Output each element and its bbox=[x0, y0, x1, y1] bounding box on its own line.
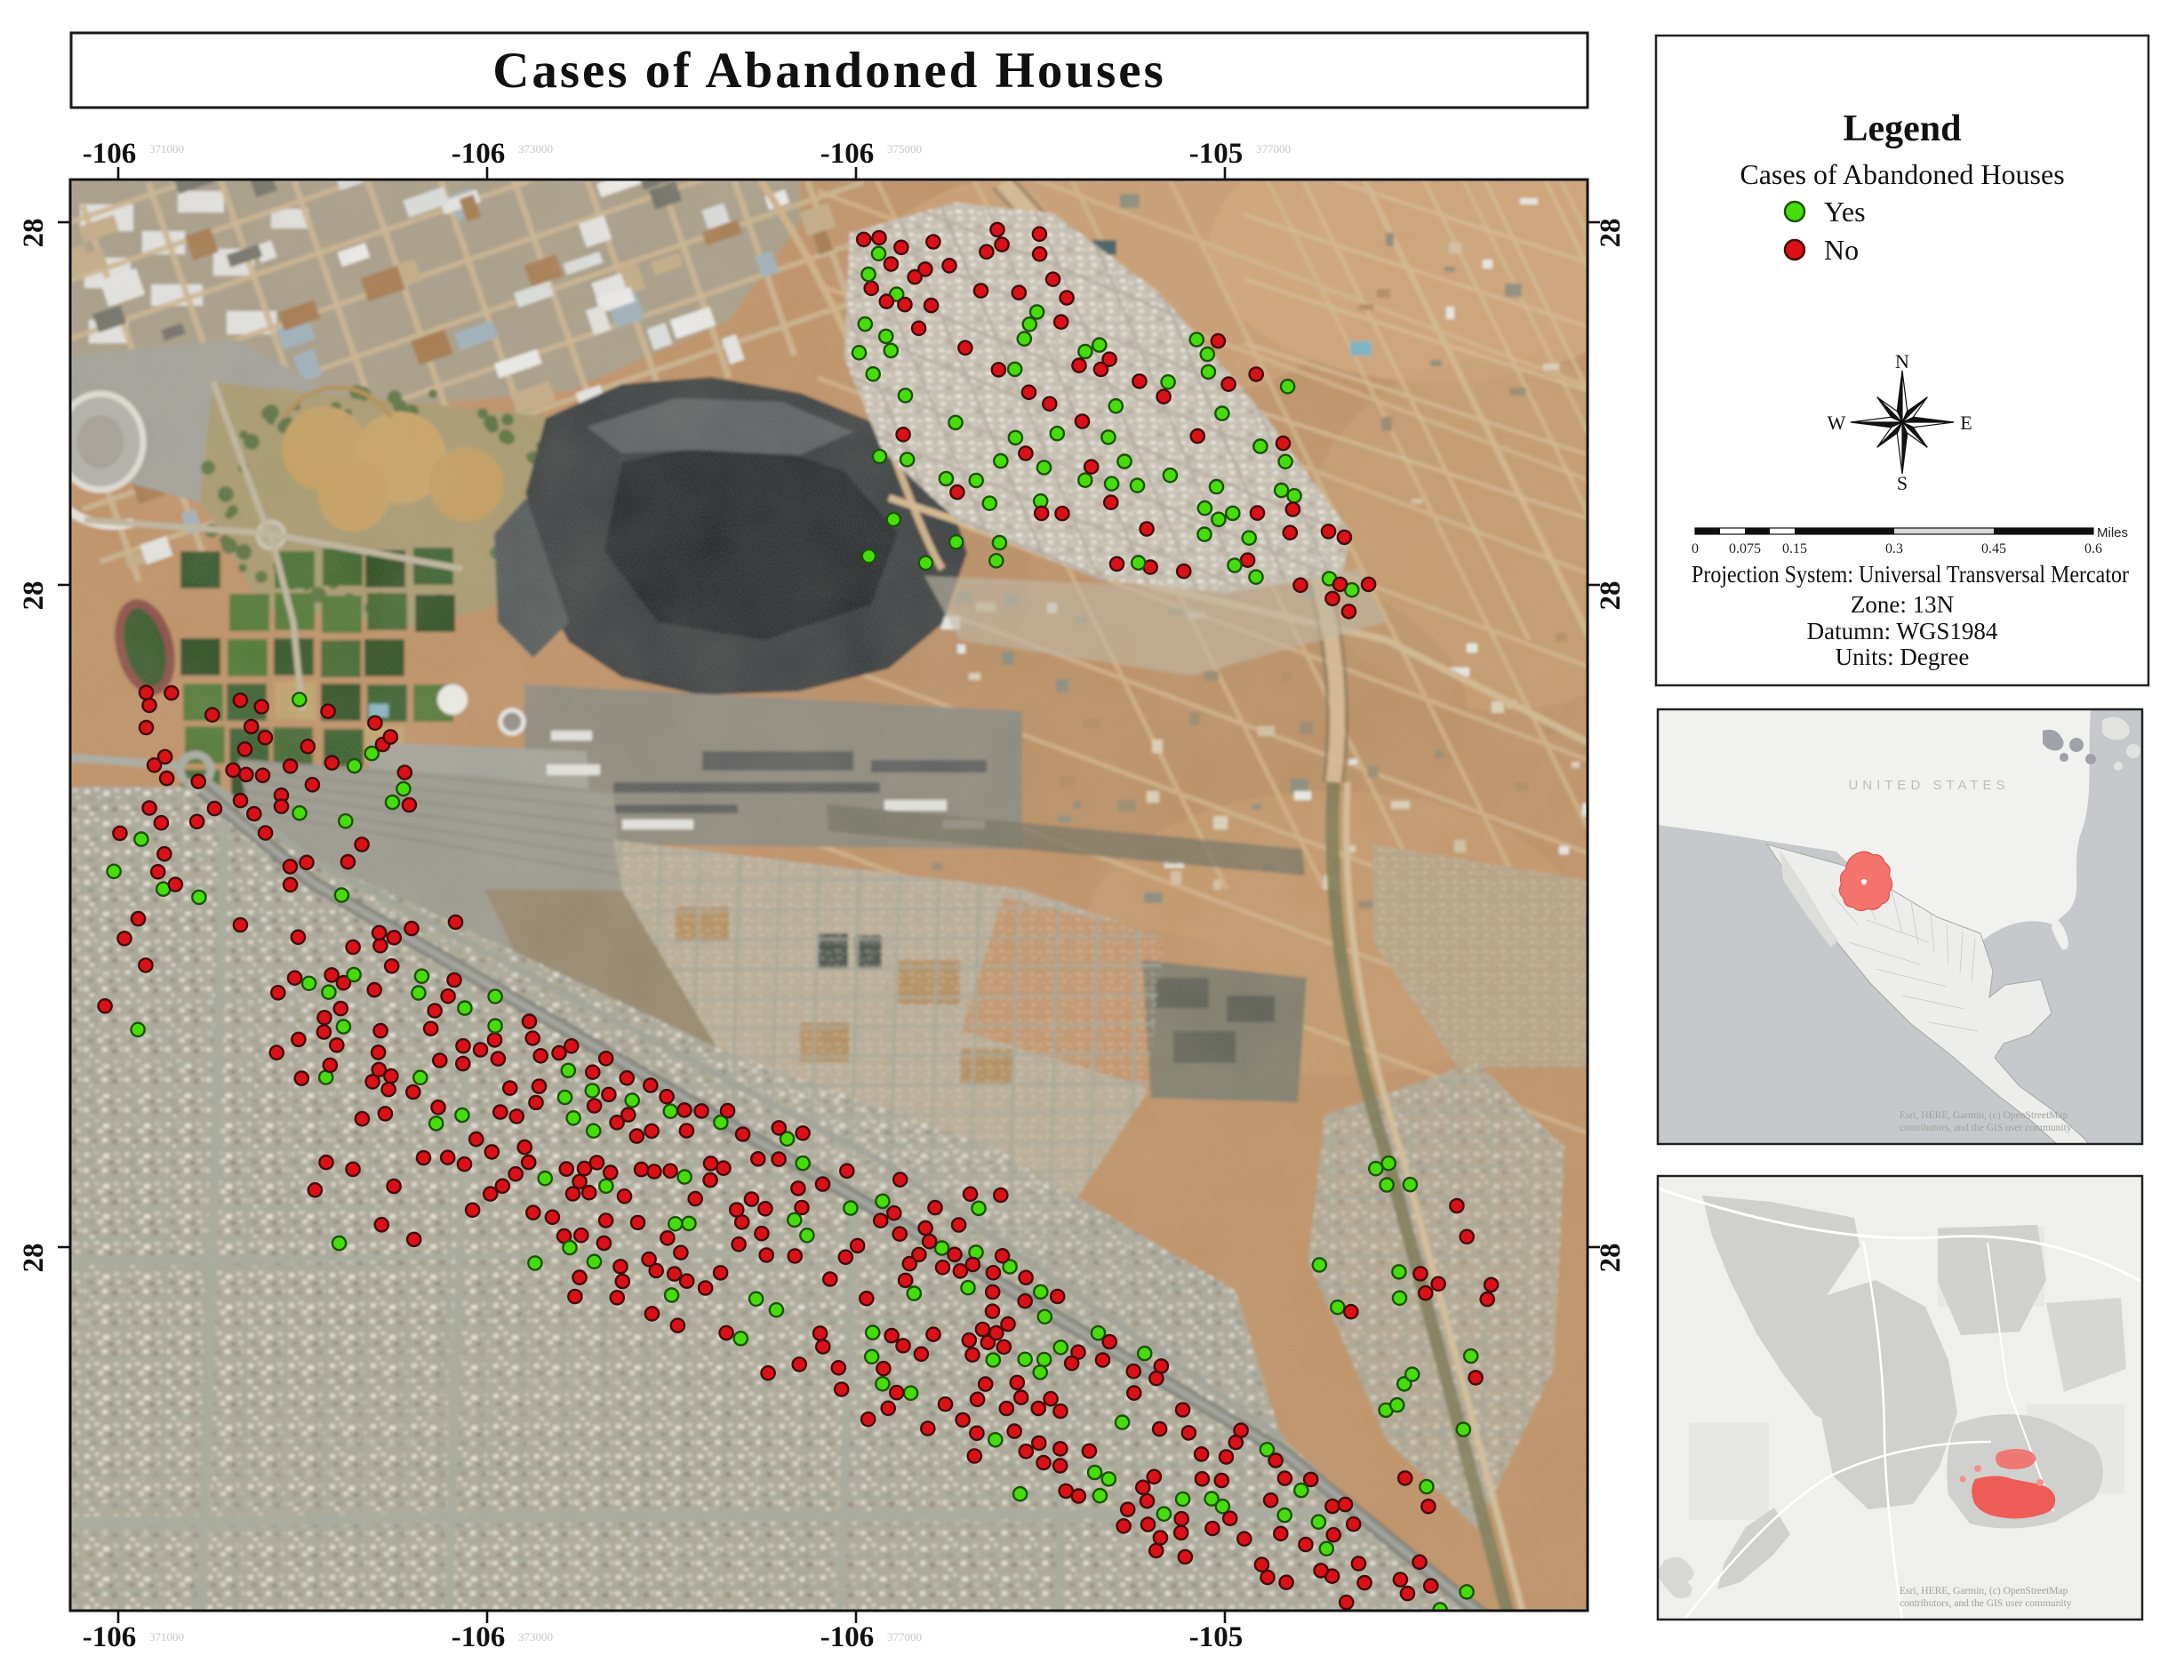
svg-text:377000: 377000 bbox=[1256, 142, 1291, 156]
svg-text:28: 28 bbox=[18, 219, 50, 248]
svg-text:0.15: 0.15 bbox=[1782, 541, 1807, 556]
svg-text:-106: -106 bbox=[83, 138, 137, 170]
svg-text:28: 28 bbox=[18, 581, 50, 611]
svg-text:Esri, HERE, Garmin, (c) OpenSt: Esri, HERE, Garmin, (c) OpenStreetMap bbox=[1900, 1586, 2068, 1596]
svg-text:-105: -105 bbox=[1189, 1621, 1244, 1653]
svg-text:contributors, and the GIS user: contributors, and the GIS user community bbox=[1900, 1123, 2072, 1133]
svg-text:0.6: 0.6 bbox=[2084, 541, 2102, 556]
svg-text:377000: 377000 bbox=[887, 1630, 922, 1644]
svg-text:28: 28 bbox=[18, 1244, 50, 1273]
svg-text:UNITED STATES: UNITED STATES bbox=[1848, 778, 2009, 793]
svg-text:28: 28 bbox=[1595, 581, 1627, 611]
svg-text:S: S bbox=[1897, 472, 1908, 494]
svg-text:Datumn: WGS1984: Datumn: WGS1984 bbox=[1807, 618, 1998, 644]
svg-text:-106: -106 bbox=[820, 1621, 875, 1653]
svg-text:0.3: 0.3 bbox=[1885, 541, 1903, 556]
svg-text:371000: 371000 bbox=[149, 1630, 184, 1644]
svg-text:-106: -106 bbox=[820, 138, 875, 170]
svg-text:Legend: Legend bbox=[1843, 108, 1961, 149]
svg-text:-106: -106 bbox=[452, 1621, 506, 1653]
svg-text:Cases of Abandoned Houses: Cases of Abandoned Houses bbox=[1740, 158, 2064, 190]
svg-text:Zone: 13N: Zone: 13N bbox=[1851, 591, 1954, 618]
svg-text:0: 0 bbox=[1692, 541, 1699, 556]
svg-text:Projection System: Universal T: Projection System: Universal Transversal… bbox=[1692, 561, 2129, 588]
svg-text:Esri, HERE, Garmin, (c) OpenSt: Esri, HERE, Garmin, (c) OpenStreetMap bbox=[1900, 1110, 2068, 1121]
svg-text:0.45: 0.45 bbox=[1981, 541, 2006, 556]
svg-text:N: N bbox=[1895, 350, 1909, 372]
svg-text:W: W bbox=[1828, 412, 1846, 434]
svg-text:No: No bbox=[1824, 234, 1859, 266]
svg-text:0.075: 0.075 bbox=[1729, 541, 1761, 556]
svg-text:Units: Degree: Units: Degree bbox=[1836, 644, 1970, 670]
svg-text:Yes: Yes bbox=[1824, 196, 1866, 228]
svg-text:-106: -106 bbox=[83, 1621, 137, 1653]
svg-text:373000: 373000 bbox=[518, 1630, 553, 1644]
svg-text:-105: -105 bbox=[1189, 138, 1244, 170]
svg-text:contributors, and the GIS user: contributors, and the GIS user community bbox=[1900, 1598, 2072, 1609]
svg-text:371000: 371000 bbox=[149, 142, 184, 156]
svg-text:373000: 373000 bbox=[518, 142, 553, 156]
svg-text:28: 28 bbox=[1595, 219, 1627, 248]
svg-text:-106: -106 bbox=[452, 138, 506, 170]
svg-text:Miles: Miles bbox=[2097, 525, 2128, 540]
svg-text:28: 28 bbox=[1595, 1244, 1627, 1273]
svg-text:E: E bbox=[1960, 412, 1972, 434]
svg-text:Cases of Abandoned Houses: Cases of Abandoned Houses bbox=[492, 43, 1166, 99]
svg-text:375000: 375000 bbox=[887, 142, 922, 156]
